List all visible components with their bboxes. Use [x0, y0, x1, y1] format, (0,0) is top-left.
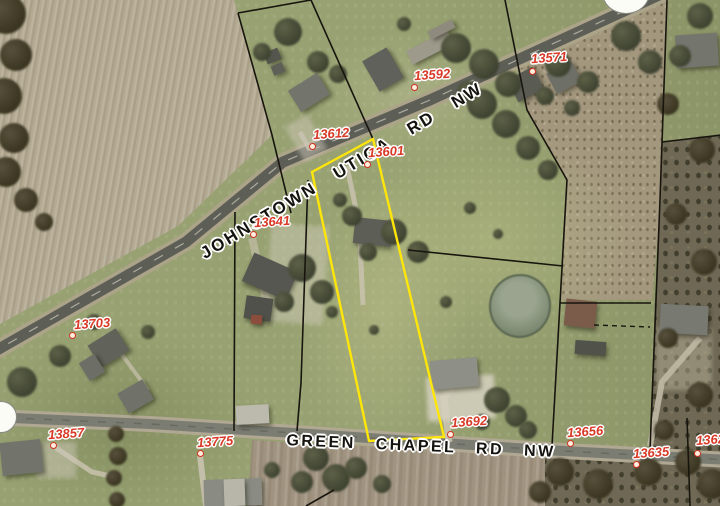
parcel-point-marker[interactable]: [447, 431, 454, 438]
parcel-address-label[interactable]: 13612: [313, 125, 350, 142]
parcel-address-label[interactable]: 13592: [414, 66, 451, 83]
parcel-address-label[interactable]: 1362: [696, 431, 720, 448]
parcel-point-marker[interactable]: [197, 450, 204, 457]
parcel-address-label[interactable]: 13571: [531, 49, 568, 66]
map-canvas[interactable]: JOHNSTOWN UTICA RD NWGREEN CHAPEL RD NW …: [0, 0, 720, 506]
parcel-point-marker[interactable]: [694, 450, 701, 457]
parcel-point-marker[interactable]: [309, 143, 316, 150]
parcel-address-label[interactable]: 13692: [451, 413, 488, 430]
parcel-address-label[interactable]: 13601: [368, 143, 405, 160]
parcel-address-label[interactable]: 13775: [197, 433, 234, 450]
parcel-address-label[interactable]: 13857: [48, 425, 85, 442]
parcel-address-label[interactable]: 13703: [74, 315, 111, 332]
parcel-point-marker[interactable]: [411, 84, 418, 91]
parcel-address-label[interactable]: 13641: [254, 213, 291, 230]
parcel-point-marker[interactable]: [567, 440, 574, 447]
parcel-point-marker[interactable]: [364, 161, 371, 168]
parcel-labels-layer: 1359213571136121360113641137031385713775…: [0, 0, 720, 506]
parcel-point-marker[interactable]: [529, 68, 536, 75]
parcel-point-marker[interactable]: [69, 332, 76, 339]
parcel-point-marker[interactable]: [633, 461, 640, 468]
parcel-point-marker[interactable]: [250, 231, 257, 238]
parcel-address-label[interactable]: 13635: [633, 444, 670, 461]
parcel-point-marker[interactable]: [50, 442, 57, 449]
parcel-address-label[interactable]: 13656: [567, 423, 604, 440]
